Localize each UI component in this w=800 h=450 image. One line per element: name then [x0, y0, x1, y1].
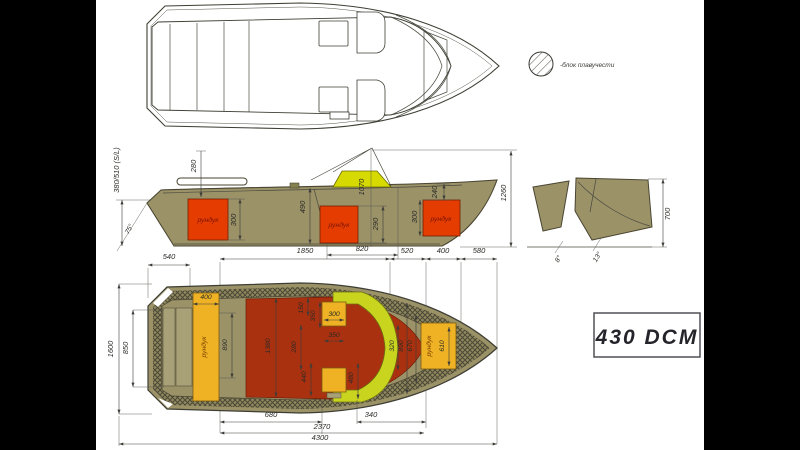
dim-1850: 1850 — [297, 246, 315, 255]
dim-890-left: 890 — [222, 339, 229, 351]
top-view-seat-back-starboard — [357, 80, 385, 121]
stern-bench-2 — [176, 308, 192, 386]
dim-1600: 1600 — [106, 340, 115, 358]
dim-300-seat: 300 — [328, 311, 340, 318]
model-label: 430 DCM — [595, 326, 699, 349]
dim-440: 440 — [301, 371, 308, 383]
dim-820: 820 — [356, 244, 369, 253]
dim-890-right: 890 — [398, 340, 405, 352]
dim-480: 480 — [348, 372, 355, 384]
dim-400-locker: 400 — [200, 294, 212, 301]
dim-350-top: 350 — [310, 310, 317, 322]
boat-drawing-page: -блок плавучести рундук рундук рундук 38… — [0, 0, 800, 450]
side-deck-fitting — [290, 183, 299, 188]
dim-490: 490 — [298, 200, 307, 213]
top-view-step — [330, 112, 349, 119]
dim-280: 280 — [189, 159, 198, 173]
dim-300-stern: 300 — [229, 213, 238, 226]
top-view-seat-back-port — [357, 12, 385, 53]
dim-700: 700 — [663, 207, 672, 220]
dim-670: 670 — [407, 340, 414, 352]
drawing-canvas: -блок плавучести рундук рундук рундук 38… — [0, 0, 800, 450]
bottom-locker-bow-label: рундук — [425, 335, 433, 358]
side-locker-stern-label: рундук — [197, 216, 220, 224]
stern-bench-1 — [163, 308, 175, 386]
dim-2370: 2370 — [313, 422, 332, 431]
dim-400: 400 — [437, 246, 450, 255]
dim-1260: 1260 — [499, 184, 508, 202]
bottom-locker-left-label: рундук — [200, 336, 208, 359]
dim-290: 290 — [371, 217, 380, 231]
side-locker-mid-label: рундук — [328, 221, 351, 229]
buoyancy-block-swatch-icon — [529, 52, 553, 76]
dim-520: 520 — [401, 246, 414, 255]
dim-320: 320 — [389, 340, 396, 352]
side-locker-bow-label: рундук — [430, 215, 453, 223]
top-view-seat-cushion-port — [319, 21, 348, 46]
model-box: 430 DCM — [594, 313, 700, 357]
bottom-seat-bottom — [322, 368, 346, 392]
dim-4300: 4300 — [312, 433, 330, 442]
bottom-seat-step — [327, 393, 341, 398]
dim-150: 150 — [298, 302, 305, 314]
dim-580: 580 — [473, 246, 486, 255]
dim-1070: 1070 — [357, 178, 366, 196]
dim-540: 540 — [163, 252, 176, 261]
dim-610: 610 — [439, 340, 446, 352]
top-view-seat-cushion-starboard — [319, 87, 348, 112]
dim-350-mid: 350 — [328, 332, 340, 339]
dim-340: 340 — [365, 410, 378, 419]
dim-680: 680 — [265, 410, 278, 419]
dim-freeboard: 380/510 (S/L) — [112, 147, 121, 193]
dim-240: 240 — [430, 185, 439, 199]
dim-1380: 1380 — [265, 338, 272, 353]
dim-280: 280 — [291, 341, 298, 354]
dim-850: 850 — [121, 341, 130, 354]
dim-300-bow: 300 — [410, 210, 419, 223]
legend-label: -блок плавучести — [560, 61, 615, 69]
